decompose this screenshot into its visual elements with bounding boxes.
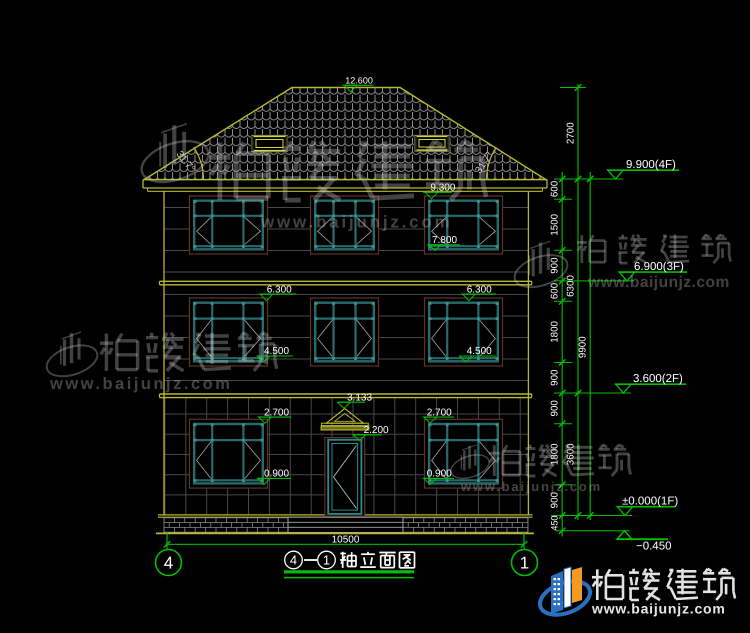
svg-text:−0.450: −0.450 bbox=[636, 541, 672, 553]
svg-text:900: 900 bbox=[550, 400, 561, 417]
svg-text:1: 1 bbox=[323, 553, 330, 568]
svg-text:600: 600 bbox=[550, 282, 561, 299]
svg-text:www.baijunjz.com: www.baijunjz.com bbox=[591, 601, 726, 617]
svg-text:www.baijunjz.com: www.baijunjz.com bbox=[260, 213, 453, 232]
svg-text:900: 900 bbox=[550, 257, 561, 274]
svg-text:1800: 1800 bbox=[550, 320, 561, 342]
svg-text:www.baijunjz.com: www.baijunjz.com bbox=[460, 479, 602, 494]
svg-text:2700: 2700 bbox=[566, 122, 577, 144]
svg-text:www.baijunjz.com: www.baijunjz.com bbox=[587, 274, 730, 291]
svg-text:600: 600 bbox=[550, 180, 561, 197]
svg-text:10500: 10500 bbox=[332, 535, 360, 546]
svg-text:12.600: 12.600 bbox=[345, 76, 373, 86]
svg-text:4: 4 bbox=[290, 553, 297, 568]
svg-text:3.600(2F): 3.600(2F) bbox=[633, 373, 683, 385]
svg-text:4: 4 bbox=[164, 554, 173, 573]
svg-text:9900: 9900 bbox=[578, 336, 589, 358]
svg-text:±0.000(1F): ±0.000(1F) bbox=[622, 496, 678, 508]
svg-text:900: 900 bbox=[550, 369, 561, 386]
svg-text:900: 900 bbox=[550, 491, 561, 508]
svg-text:www.baijunjz.com: www.baijunjz.com bbox=[49, 375, 232, 393]
svg-text:1: 1 bbox=[520, 554, 529, 573]
svg-text:1500: 1500 bbox=[550, 213, 561, 235]
svg-text:6300: 6300 bbox=[566, 275, 577, 297]
svg-text:450: 450 bbox=[550, 515, 560, 530]
svg-text:9.900(4F): 9.900(4F) bbox=[626, 159, 676, 171]
